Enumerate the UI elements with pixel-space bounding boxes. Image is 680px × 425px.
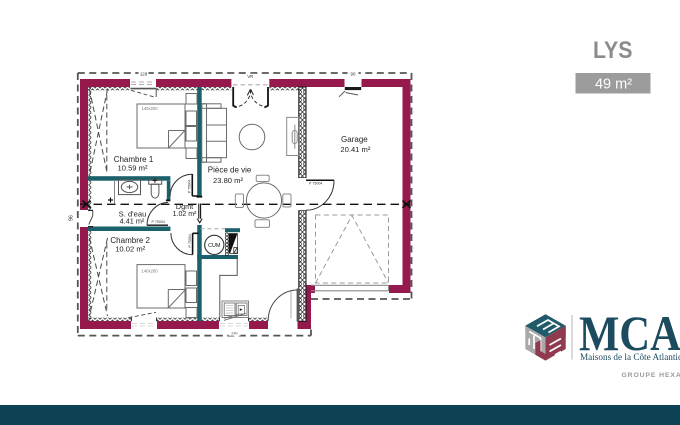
svg-text:1.02 m²: 1.02 m² [173,211,197,218]
svg-text:140x200: 140x200 [142,106,159,111]
svg-text:96: 96 [69,215,75,221]
svg-text:P 75004: P 75004 [152,220,165,224]
svg-text:Garage: Garage [341,135,368,144]
svg-text:Dgmt: Dgmt [176,202,193,211]
svg-text:128: 128 [140,72,148,77]
svg-text:P 75004: P 75004 [309,182,322,186]
svg-text:Maisons de la Côte Atlantique: Maisons de la Côte Atlantique [580,352,680,362]
svg-text:23.80 m²: 23.80 m² [213,176,243,185]
svg-text:10.59 m²: 10.59 m² [118,163,148,172]
svg-text:90: 90 [351,72,356,77]
svg-text:P 75004: P 75004 [188,180,192,193]
svg-text:20.41 m²: 20.41 m² [340,145,370,154]
svg-text:P 75004: P 75004 [188,234,192,247]
svg-text:10.02 m²: 10.02 m² [115,245,145,254]
svg-text:140x200: 140x200 [142,268,159,273]
svg-text:LYS: LYS [593,37,633,64]
svg-text:CUM: CUM [208,243,221,249]
svg-text:Pièce de vie: Pièce de vie [208,165,252,174]
svg-text:4.41 m²: 4.41 m² [120,217,145,226]
svg-text:VR: VR [247,74,253,79]
svg-text:GROUPE HEXAOM: GROUPE HEXAOM [622,372,680,379]
svg-text:49 m²: 49 m² [595,76,632,92]
svg-text:240: 240 [231,332,237,336]
